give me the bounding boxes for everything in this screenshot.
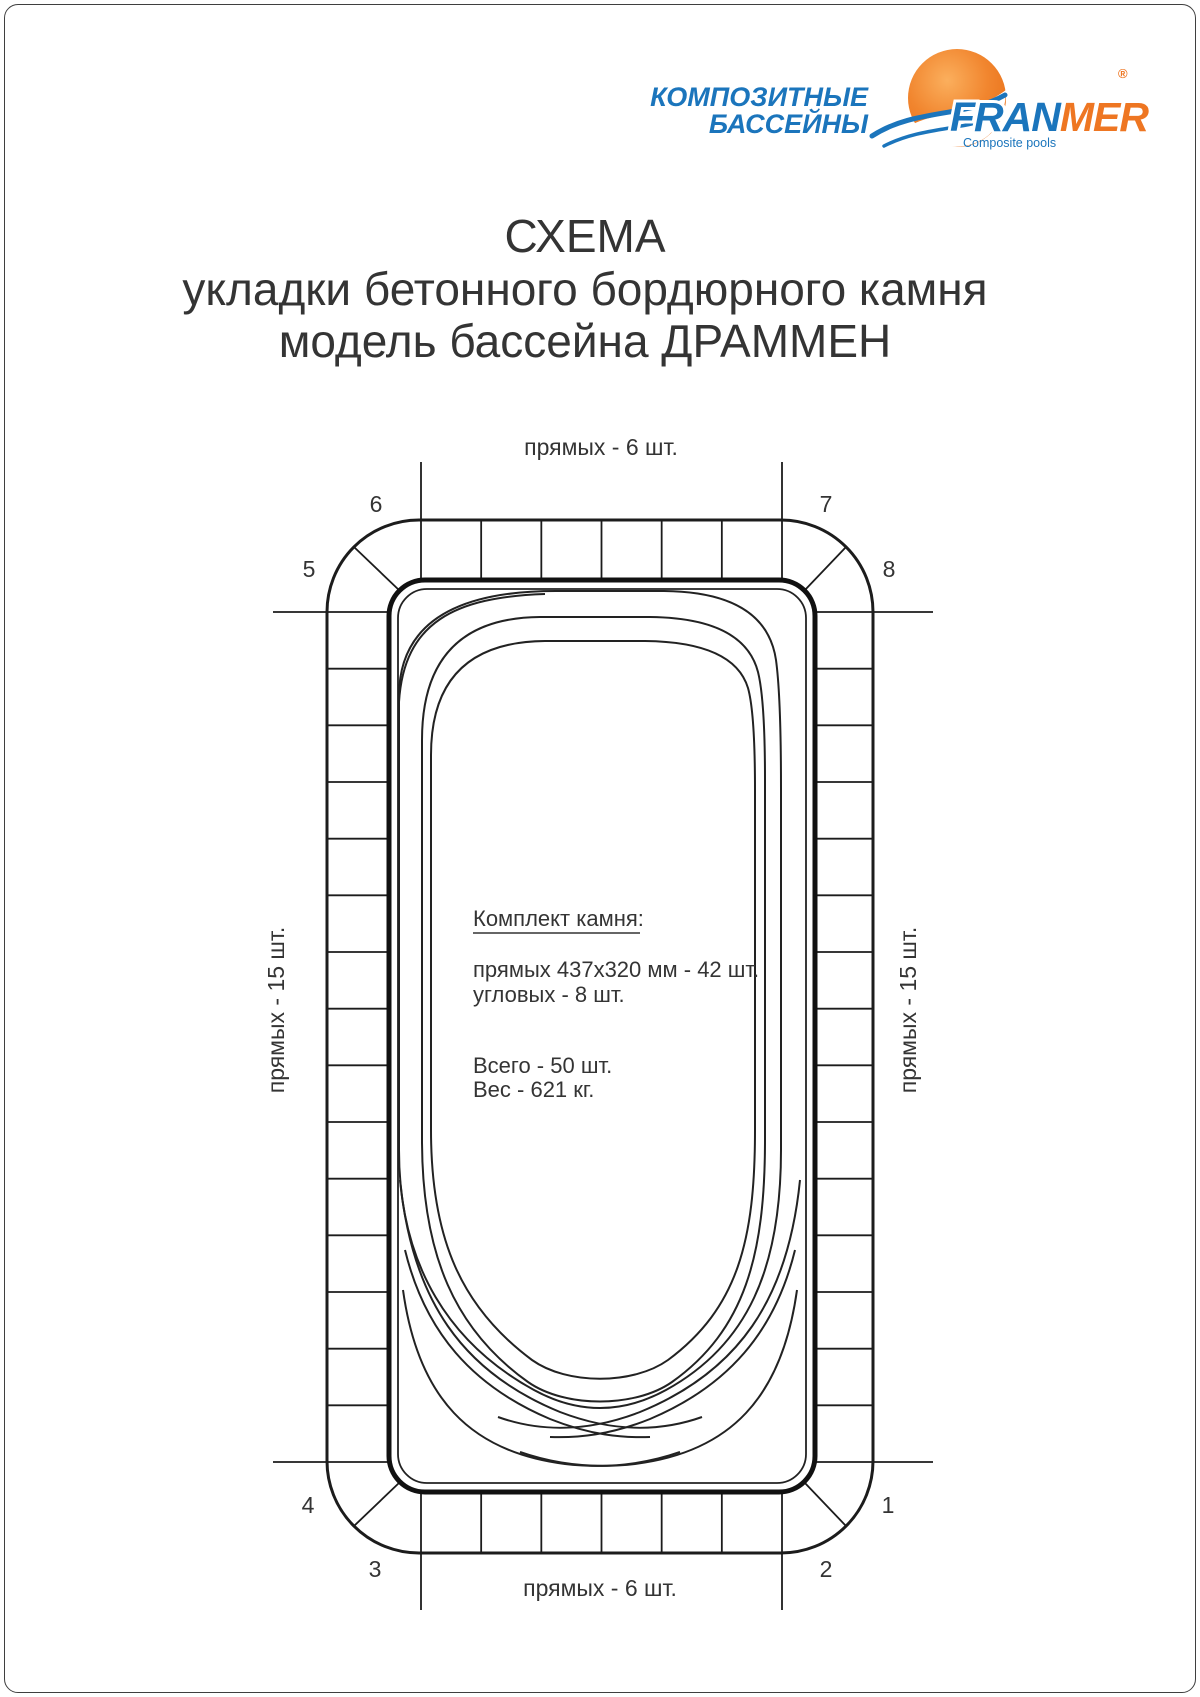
corner-number-4: 4 xyxy=(302,1492,315,1518)
corner-number-8: 8 xyxy=(883,556,896,582)
franmer-logo: КОМПОЗИТНЫЕ БАССЕЙНЫ FRANMER ® Composite… xyxy=(650,49,1149,150)
title-line3: модель бассейна ДРАММЕН xyxy=(279,315,892,367)
brand-text-line1: КОМПОЗИТНЫЕ xyxy=(650,82,869,112)
registered-trademark: ® xyxy=(1118,66,1128,81)
right-count-label: прямых - 15 шт. xyxy=(895,927,921,1094)
brand-text-line2: БАССЕЙНЫ xyxy=(709,107,869,139)
curb-layout-diagram: прямых - 6 шт. прямых - 6 шт. прямых - 1… xyxy=(263,434,933,1610)
corner-number-1: 1 xyxy=(882,1492,895,1518)
corner-number-5: 5 xyxy=(303,556,316,582)
bottom-count-label: прямых - 6 шт. xyxy=(523,1575,677,1601)
spec-total-weight: Вес - 621 кг. xyxy=(473,1077,594,1102)
corner-number-3: 3 xyxy=(369,1556,382,1582)
spec-straight-stones: прямых 437х320 мм - 42 шт. xyxy=(473,957,759,982)
left-count-label: прямых - 15 шт. xyxy=(263,927,289,1094)
title-line2: укладки бетонного бордюрного камня xyxy=(182,263,987,315)
pool-curb-scheme: КОМПОЗИТНЫЕ БАССЕЙНЫ FRANMER ® Composite… xyxy=(0,0,1200,1697)
title-line1: СХЕМА xyxy=(505,210,666,262)
spec-total-count: Всего - 50 шт. xyxy=(473,1053,612,1078)
spec-heading: Комплект камня: xyxy=(473,906,644,931)
corner-number-6: 6 xyxy=(370,491,383,517)
pool-shell xyxy=(389,580,815,1492)
corner-number-7: 7 xyxy=(820,491,833,517)
spec-corner-stones: угловых - 8 шт. xyxy=(473,982,625,1007)
brand-tagline: Composite pools xyxy=(963,136,1056,150)
corner-number-2: 2 xyxy=(820,1556,833,1582)
page-title: СХЕМА укладки бетонного бордюрного камня… xyxy=(182,210,987,367)
top-count-label: прямых - 6 шт. xyxy=(524,434,678,460)
brand-wordmark: FRANMER xyxy=(950,94,1149,140)
